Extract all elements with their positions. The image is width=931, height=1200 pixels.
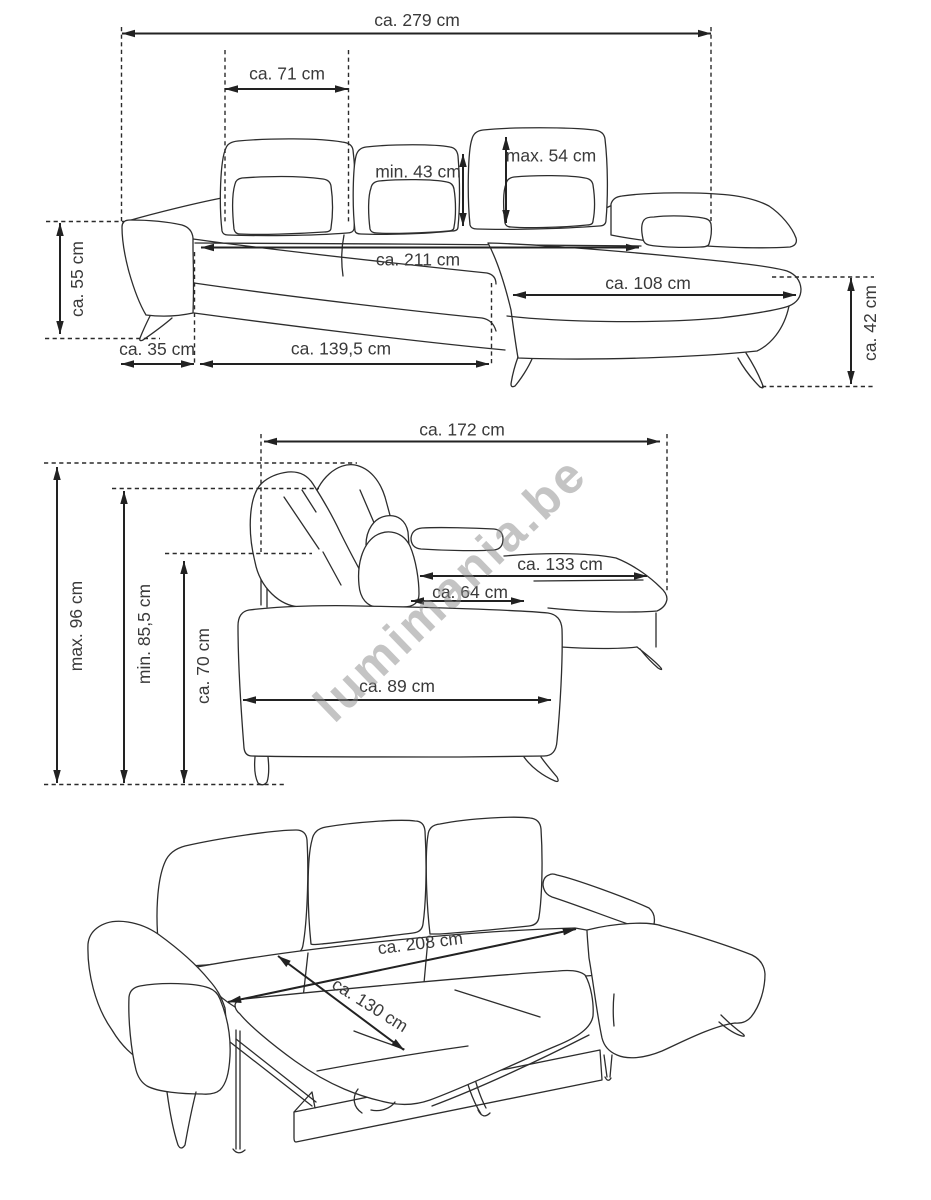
svg-text:ca. 71 cm: ca. 71 cm [249,64,325,84]
svg-text:max. 54 cm: max. 54 cm [506,146,596,166]
svg-text:ca. 279 cm: ca. 279 cm [374,10,460,30]
svg-text:min. 43 cm: min. 43 cm [375,162,461,182]
svg-text:max. 96 cm: max. 96 cm [66,581,86,671]
svg-text:ca. 42 cm: ca. 42 cm [860,285,880,361]
svg-text:ca. 139,5 cm: ca. 139,5 cm [291,339,391,359]
svg-text:min. 85,5 cm: min. 85,5 cm [134,584,154,684]
svg-text:ca. 70 cm: ca. 70 cm [193,628,213,704]
svg-text:ca. 35 cm: ca. 35 cm [119,339,195,359]
svg-text:ca. 55 cm: ca. 55 cm [67,241,87,317]
svg-text:ca. 172 cm: ca. 172 cm [419,420,505,440]
svg-text:ca. 211 cm: ca. 211 cm [376,250,460,270]
svg-text:ca. 108 cm: ca. 108 cm [605,273,691,293]
svg-text:ca. 133 cm: ca. 133 cm [517,554,603,574]
